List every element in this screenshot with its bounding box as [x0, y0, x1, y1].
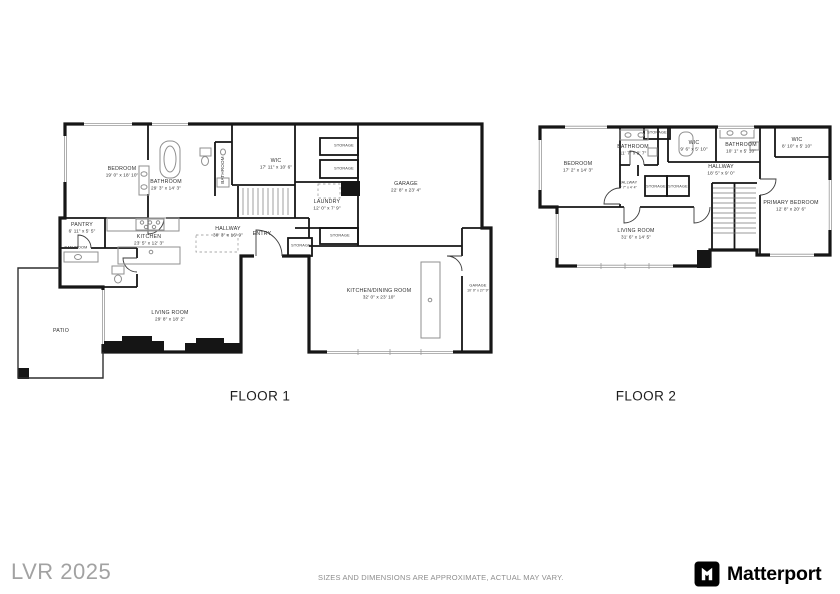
room-label-f2-storage-top: STORAGE [647, 131, 667, 136]
room-name: STORAGE [334, 144, 354, 149]
room-name: BATHROOM [150, 179, 182, 186]
room-dims: 29' 3" x 14' 3" [150, 185, 182, 191]
room-name: BATHROOM [725, 142, 757, 149]
room-name: ENTRY [253, 231, 272, 238]
room-name: PRIMARY BEDROOM [763, 200, 818, 207]
room-name: BATHROOM [65, 246, 88, 251]
room-label-f1-bathroom-small: BATHROOM [220, 156, 226, 184]
room-name: KITCHEN/DINING ROOM [347, 288, 412, 295]
room-label-f1-bedroom: BEDROOM 19' 0" x 18' 10" [106, 166, 139, 179]
room-name: STORAGE [334, 167, 354, 172]
room-dims: 29' 8" x 18' 2" [151, 316, 188, 322]
room-name: LAUNDRY [313, 199, 340, 206]
watermark-lvr-2025: LVR 2025 [11, 559, 111, 585]
floorplan-walls [0, 0, 840, 594]
floorplan-canvas: BEDROOM 19' 0" x 18' 10" BATHROOM 29' 3"… [0, 0, 840, 594]
room-dims: 6' 11" x 5' 5" [69, 228, 96, 234]
room-name: LIVING ROOM [617, 228, 654, 235]
floor-2-title: FLOOR 2 [616, 389, 677, 404]
room-label-f2-hallway-small: HALLWAY 6' 7" x 4' 4" [619, 180, 638, 189]
room-label-f2-storage-a: STORAGE [646, 185, 666, 190]
room-label-f1-bathroom-powder: BATHROOM [65, 246, 88, 251]
room-dims: 18' 5" x 9' 0" [707, 170, 734, 176]
room-name: BEDROOM [106, 166, 139, 173]
room-label-f1-living-room: LIVING ROOM 29' 8" x 18' 2" [151, 310, 188, 323]
room-name: PATIO [53, 328, 69, 335]
room-label-f2-storage-b: STORAGE [668, 185, 688, 190]
room-dims: 12' 0" x 7' 9" [313, 205, 340, 211]
room-dims: 12' 8" x 20' 6" [763, 206, 818, 212]
room-label-f1-pantry: PANTRY 6' 11" x 5' 5" [69, 222, 96, 235]
room-dims: 9' 6" x 5' 10" [680, 146, 707, 152]
room-name: BATHROOM [220, 156, 226, 184]
room-label-f1-storage-2: STORAGE [334, 167, 354, 172]
room-name: WIC [260, 158, 292, 165]
room-label-f1-laundry: LAUNDRY 12' 0" x 7' 9" [313, 199, 340, 212]
room-label-f1-kitchen: KITCHEN 23' 5" x 12' 3" [134, 234, 164, 247]
room-name: STORAGE [668, 185, 688, 190]
room-label-f2-living-room: LIVING ROOM 31' 6" x 14' 5" [617, 228, 654, 241]
room-label-f1-kitchen-dining: KITCHEN/DINING ROOM 32' 0" x 23' 10" [347, 288, 412, 301]
room-name: BATHROOM [617, 144, 649, 151]
room-dims: 30' 3" x 16' 9" [213, 232, 243, 238]
room-dims: 8' 10" x 5' 10" [782, 143, 812, 149]
room-label-f1-storage-3: STORAGE [330, 234, 350, 239]
room-label-f2-bathroom-1: BATHROOM 11' 7" x 9' 7" [617, 144, 649, 157]
room-name: STORAGE [291, 244, 311, 249]
floor-1-title: FLOOR 1 [230, 389, 291, 404]
room-name: STORAGE [647, 131, 667, 136]
room-dims: 31' 6" x 14' 5" [617, 234, 654, 240]
room-label-f2-wic-left: WIC 9' 6" x 5' 10" [680, 140, 707, 153]
matterport-brand: Matterport [694, 561, 821, 587]
room-name: STORAGE [646, 185, 666, 190]
room-dims: 11' 7" x 9' 7" [617, 150, 649, 156]
room-label-f1-hallway: HALLWAY 30' 3" x 16' 9" [213, 226, 243, 239]
room-dims: 10' 1" x 5' 10" [725, 148, 757, 154]
room-label-f1-garage-2: GARAGE 10' 0" x 27' 9" [467, 283, 489, 292]
room-dims: 23' 5" x 12' 3" [134, 240, 164, 246]
room-label-f1-storage-4: STORAGE [291, 244, 311, 249]
room-name: WIC [680, 140, 707, 147]
matterport-wordmark: Matterport [727, 563, 821, 586]
room-dims: 22' 8" x 23' 4" [391, 187, 421, 193]
room-label-f1-patio: PATIO [53, 328, 69, 335]
room-dims: 17' 11" x 10' 6" [260, 164, 292, 170]
room-label-f1-storage-1: STORAGE [334, 144, 354, 149]
room-label-f2-bedroom: BEDROOM 17' 2" x 14' 3" [563, 161, 593, 174]
room-name: PANTRY [69, 222, 96, 229]
room-name: GARAGE [391, 181, 421, 188]
room-name: BEDROOM [563, 161, 593, 168]
room-label-f1-bathroom: BATHROOM 29' 3" x 14' 3" [150, 179, 182, 192]
room-label-f2-wic-right: WIC 8' 10" x 5' 10" [782, 137, 812, 150]
room-name: STORAGE [330, 234, 350, 239]
room-dims: 17' 2" x 14' 3" [563, 167, 593, 173]
room-label-f2-primary-bedroom: PRIMARY BEDROOM 12' 8" x 20' 6" [763, 200, 818, 213]
room-dims: 10' 0" x 27' 9" [467, 288, 489, 292]
room-label-f2-hallway-big: HALLWAY 18' 5" x 9' 0" [707, 164, 734, 177]
room-dims: 32' 0" x 23' 10" [347, 294, 412, 300]
room-name: KITCHEN [134, 234, 164, 241]
matterport-logo-icon [694, 561, 720, 587]
room-dims: 6' 7" x 4' 4" [619, 185, 638, 189]
room-label-f1-entry: ENTRY [253, 231, 272, 238]
room-label-f2-bathroom-2: BATHROOM 10' 1" x 5' 10" [725, 142, 757, 155]
room-name: HALLWAY [707, 164, 734, 171]
room-label-f1-garage-1: GARAGE 22' 8" x 23' 4" [391, 181, 421, 194]
disclaimer-text: SIZES AND DIMENSIONS ARE APPROXIMATE, AC… [318, 573, 564, 582]
room-name: HALLWAY [213, 226, 243, 233]
room-label-f1-wic: WIC 17' 11" x 10' 6" [260, 158, 292, 171]
room-name: LIVING ROOM [151, 310, 188, 317]
room-dims: 19' 0" x 18' 10" [106, 172, 139, 178]
room-name: WIC [782, 137, 812, 144]
